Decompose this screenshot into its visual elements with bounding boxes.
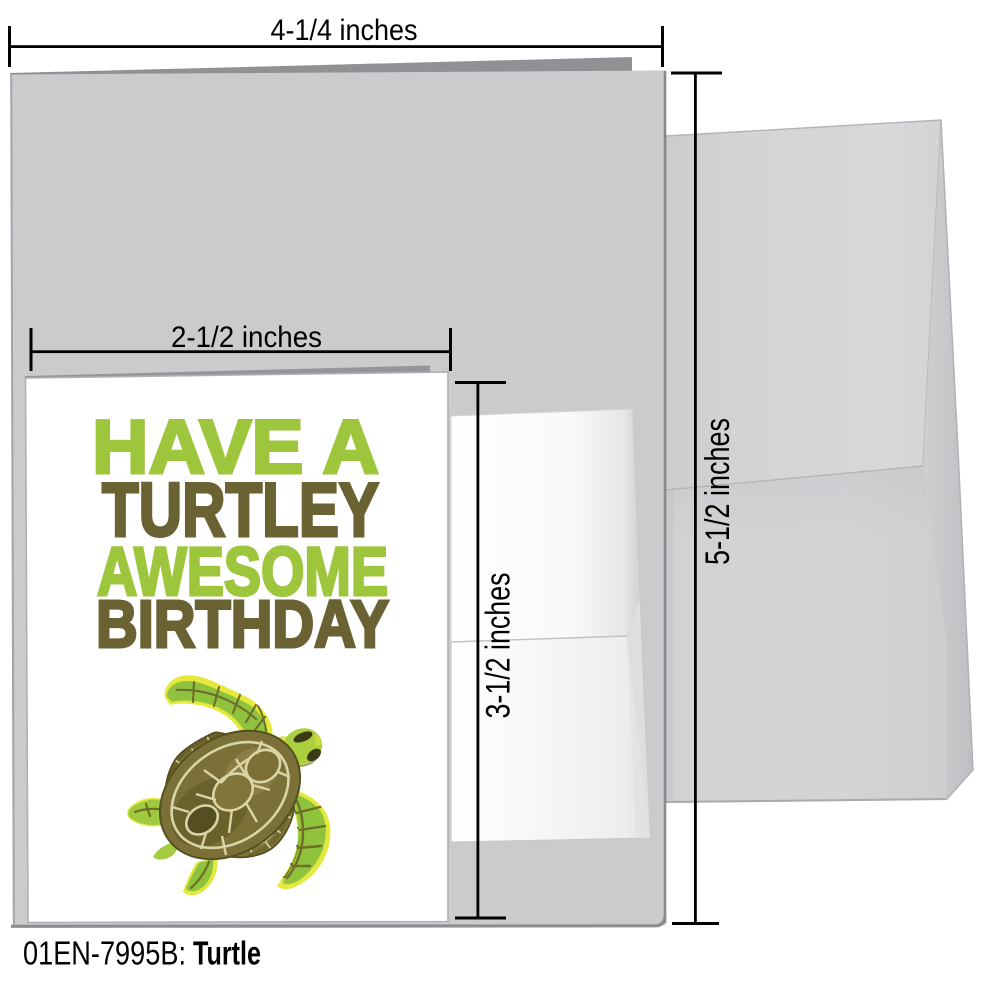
svg-text:4-1/4 inches: 4-1/4 inches <box>271 14 418 47</box>
svg-text:BIRTHDAY: BIRTHDAY <box>96 587 389 662</box>
svg-text:5-1/2 inches: 5-1/2 inches <box>699 418 737 565</box>
svg-text:01EN-7995B:Turtle: 01EN-7995B:Turtle <box>23 935 261 972</box>
svg-text:2-1/2 inches: 2-1/2 inches <box>171 321 322 354</box>
svg-text:3-1/2 inches: 3-1/2 inches <box>480 573 518 719</box>
